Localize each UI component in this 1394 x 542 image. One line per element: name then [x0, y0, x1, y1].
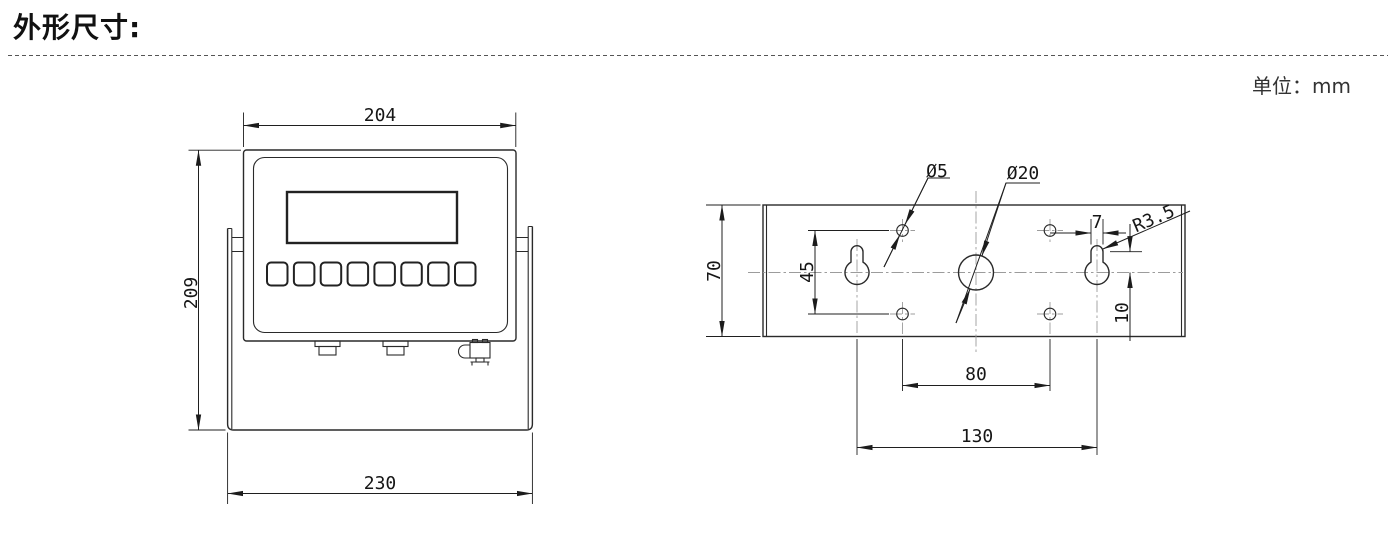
- dim-front-width-204: 204: [244, 105, 516, 147]
- svg-text:7: 7: [1092, 212, 1103, 233]
- dim-bottom-hole-span-80: 80: [903, 339, 1051, 391]
- dim-plate-height-70: 70: [704, 205, 761, 337]
- dim-front-bottom-width-230: 230: [228, 433, 533, 505]
- panel-button: [374, 263, 395, 286]
- connector: [315, 341, 340, 355]
- bracket-tab-right: [516, 238, 528, 252]
- panel-button: [428, 263, 449, 286]
- connector: [383, 341, 408, 355]
- keypad: [267, 263, 476, 286]
- leader-center-hole-dia: Ø20: [956, 163, 1040, 323]
- svg-text:230: 230: [364, 473, 397, 494]
- dim-keyhole-span-130: 130: [857, 339, 1097, 455]
- dimension-drawing-page: 外形尺寸: 单位：mm: [0, 0, 1394, 542]
- mounting-plate-rear-view: 70 45 Ø5 Ø20: [704, 161, 1190, 455]
- svg-text:Ø5: Ø5: [926, 161, 948, 182]
- dim-slot-width-7: 7: [1050, 212, 1126, 245]
- panel-button: [348, 263, 369, 286]
- svg-text:70: 70: [704, 260, 725, 282]
- svg-text:10: 10: [1112, 302, 1133, 324]
- svg-text:Ø20: Ø20: [1007, 163, 1040, 184]
- svg-text:209: 209: [181, 277, 202, 310]
- front-panel: [254, 158, 508, 333]
- technical-drawing-canvas: 204 209 230: [0, 0, 1394, 542]
- housing-outline: [244, 150, 517, 341]
- panel-button: [321, 263, 342, 286]
- leader-small-hole-dia: Ø5: [884, 161, 950, 267]
- svg-text:45: 45: [797, 261, 818, 283]
- panel-button: [294, 263, 315, 286]
- panel-button: [455, 263, 476, 286]
- display-window: [287, 192, 457, 243]
- panel-button: [401, 263, 422, 286]
- svg-text:204: 204: [364, 105, 397, 126]
- svg-text:R3.5: R3.5: [1130, 201, 1178, 237]
- leader-slot-radius: R3.5: [1103, 201, 1190, 249]
- svg-text:130: 130: [961, 426, 994, 447]
- dim-slot-offset-10: 10: [1110, 224, 1142, 341]
- bottom-connectors: [315, 340, 490, 366]
- indicator-front-view: 204 209 230: [181, 105, 532, 504]
- panel-button: [267, 263, 288, 286]
- svg-text:80: 80: [965, 364, 987, 385]
- bracket-stand: [228, 227, 533, 431]
- cable-gland: [459, 340, 490, 366]
- bracket-tab-left: [232, 238, 244, 252]
